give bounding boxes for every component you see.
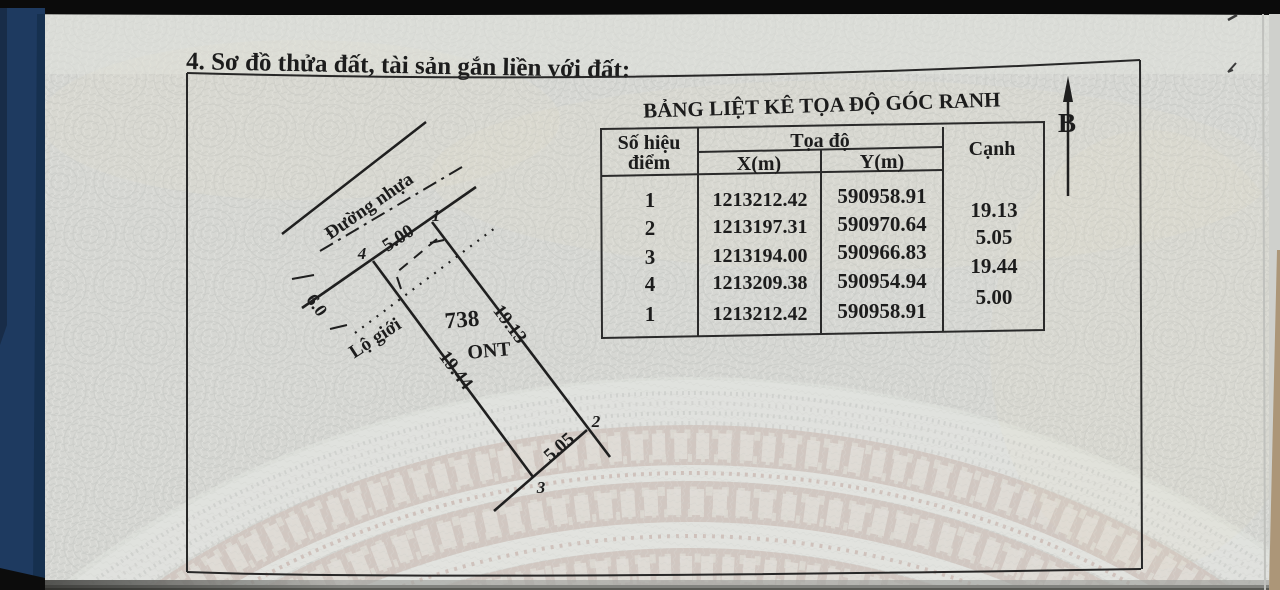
svg-text:5.00: 5.00 [976,285,1013,309]
svg-text:1213212.42: 1213212.42 [713,303,808,325]
svg-text:3: 3 [645,245,656,269]
svg-text:4: 4 [645,272,656,296]
svg-text:2: 2 [645,216,656,240]
svg-text:B: B [1058,108,1076,138]
svg-text:1213194.00: 1213194.00 [713,245,808,267]
svg-text:1213212.42: 1213212.42 [713,189,808,211]
svg-text:590958.91: 590958.91 [837,184,926,208]
svg-text:1: 1 [645,302,656,326]
svg-text:590970.64: 590970.64 [837,212,927,236]
svg-text:590954.94: 590954.94 [837,269,927,293]
svg-text:Tọa độ: Tọa độ [790,130,849,152]
svg-text:Y(m): Y(m) [860,151,904,173]
svg-text:2: 2 [591,412,601,431]
svg-text:1213209.38: 1213209.38 [713,272,808,294]
svg-text:590958.91: 590958.91 [837,299,926,323]
svg-text:3: 3 [536,478,546,497]
svg-text:1: 1 [432,206,441,225]
svg-text:X(m): X(m) [737,153,781,175]
svg-text:19.13: 19.13 [970,198,1017,222]
svg-text:1213197.31: 1213197.31 [713,216,808,238]
svg-text:738: 738 [444,306,481,334]
svg-text:Số hiệu: Số hiệu [618,132,681,154]
svg-text:1: 1 [645,188,656,212]
svg-text:5.05: 5.05 [976,225,1013,249]
svg-text:điểm: điểm [628,152,671,174]
svg-text:Cạnh: Cạnh [969,138,1016,160]
svg-text:590966.83: 590966.83 [837,240,926,264]
svg-text:4: 4 [357,244,367,263]
svg-text:ONT: ONT [467,338,513,364]
svg-text:19.44: 19.44 [970,254,1018,278]
